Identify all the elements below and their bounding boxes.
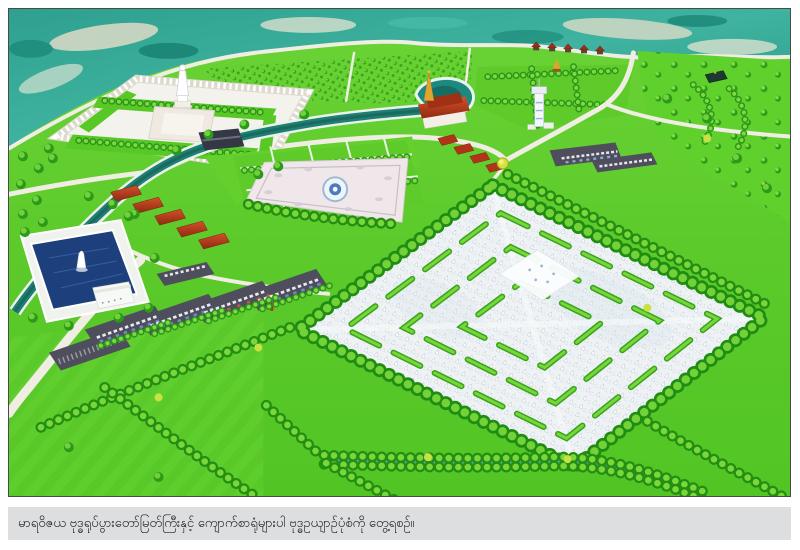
caption-bar: မာရဝိဇယ ဗုဒ္ဓရုပ်ပွားတော်မြတ်ကြီးနှင့် က… bbox=[8, 507, 791, 540]
plaza-fountain bbox=[323, 177, 347, 201]
site-rendering-image bbox=[8, 8, 791, 497]
buddha-park-rendering bbox=[9, 9, 790, 496]
caption-text: မာရဝိဇယ ဗုဒ္ဓရုပ်ပွားတော်မြတ်ကြီးနှင့် က… bbox=[18, 516, 415, 530]
roundabout-tree bbox=[497, 158, 508, 169]
news-figure-page: မာရဝိဇယ ဗုဒ္ဓရုပ်ပွားတော်မြတ်ကြီးနှင့် က… bbox=[0, 0, 800, 550]
